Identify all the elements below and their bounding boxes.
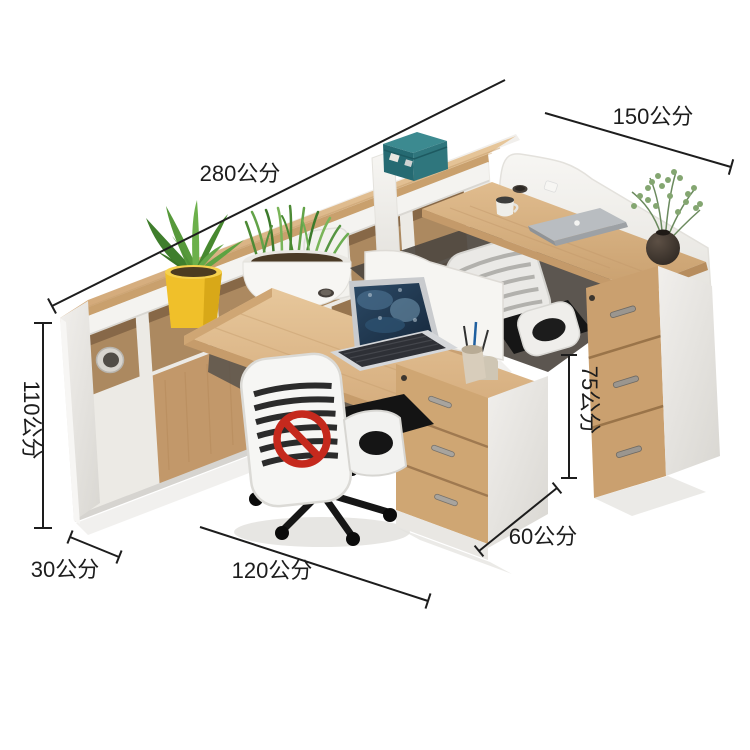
pedestal-lock — [589, 295, 595, 301]
label-credenza-length: 280公分 — [200, 161, 281, 186]
drawer-pedestal-right — [586, 266, 720, 498]
pedestal-lock-2 — [401, 375, 407, 381]
label-right-desk-length: 150公分 — [613, 104, 694, 129]
paper-tube — [97, 348, 124, 373]
label-cabinet-height: 110公分 — [19, 380, 44, 459]
dim-75 — [561, 355, 577, 478]
label-desk-length: 120公分 — [232, 558, 313, 583]
label-desk-depth: 60公分 — [509, 524, 577, 549]
chair-armrest — [344, 411, 406, 476]
product-photo: 280公分 150公分 110公分 75公分 30公分 120公分 60公分 — [0, 0, 750, 750]
label-cabinet-depth: 30公分 — [31, 557, 99, 582]
label-desk-height: 75公分 — [577, 366, 602, 434]
